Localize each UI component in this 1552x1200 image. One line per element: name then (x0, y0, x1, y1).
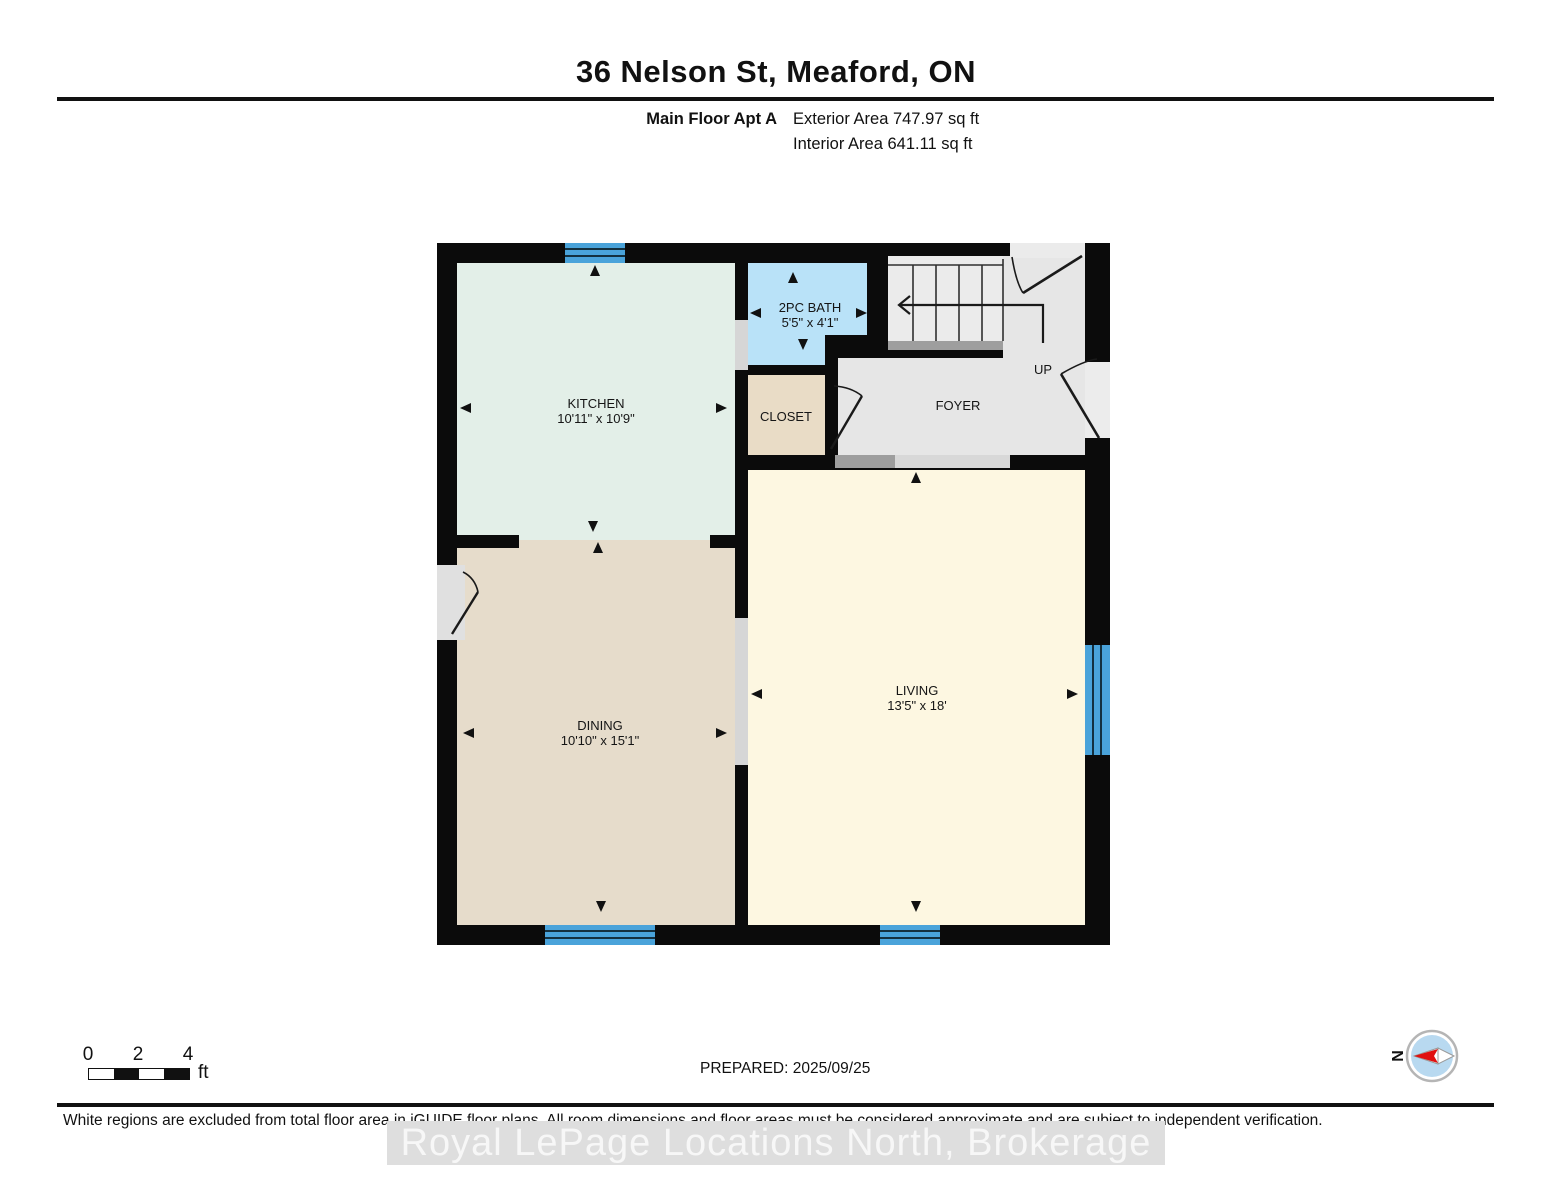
compass-icon: N (1384, 1028, 1462, 1086)
floor-label: Main Floor Apt A (0, 110, 777, 129)
dimension-arrow (590, 265, 600, 276)
dimension-arrow (716, 403, 727, 413)
exterior-area: Exterior Area 747.97 sq ft (793, 110, 979, 129)
watermark-wrap: Royal LePage Locations North, Brokerage (0, 1121, 1552, 1165)
plan-annotations (437, 243, 1110, 945)
dining-label: DINING 10'10" x 15'1" (500, 718, 700, 748)
scale-bar (88, 1068, 190, 1080)
closet-label: CLOSET (736, 409, 836, 424)
header-divider (57, 97, 1494, 101)
dimension-arrow (798, 339, 808, 350)
dimension-arrow (1067, 689, 1078, 699)
page-title: 36 Nelson St, Meaford, ON (0, 54, 1552, 90)
scale-unit: ft (198, 1062, 209, 1084)
scale-tick-0: 0 (76, 1044, 100, 1066)
dimension-arrow (911, 901, 921, 912)
brokerage-watermark: Royal LePage Locations North, Brokerage (387, 1121, 1166, 1165)
prepared-date: PREPARED: 2025/09/25 (700, 1060, 870, 1078)
dimension-arrow (911, 472, 921, 483)
stair-run-arrow (899, 296, 1043, 343)
dimension-arrow (593, 542, 603, 553)
living-label: LIVING 13'5" x 18' (817, 683, 1017, 713)
kitchen-label: KITCHEN 10'11" x 10'9" (496, 396, 696, 426)
dimension-arrow (856, 308, 867, 318)
dimension-arrow (716, 728, 727, 738)
dimension-arrow (751, 689, 762, 699)
scale-tick-4: 4 (176, 1044, 200, 1066)
dimension-arrow (463, 728, 474, 738)
floor-plan-page: 36 Nelson St, Meaford, ON Main Floor Apt… (0, 0, 1552, 1200)
dimension-arrow (750, 308, 761, 318)
floor-plan: KITCHEN 10'11" x 10'9" 2PC BATH 5'5" x 4… (437, 243, 1110, 945)
footer-divider (57, 1103, 1494, 1107)
scale-tick-2: 2 (126, 1044, 150, 1066)
interior-area: Interior Area 641.11 sq ft (793, 135, 972, 154)
dimension-arrow (588, 521, 598, 532)
dimension-arrow (460, 403, 471, 413)
foyer-label: FOYER (898, 398, 1018, 413)
north-label: N (1390, 1050, 1407, 1062)
dimension-arrow (596, 901, 606, 912)
dimension-arrow (788, 272, 798, 283)
stairs-up-label: UP (1013, 362, 1073, 377)
